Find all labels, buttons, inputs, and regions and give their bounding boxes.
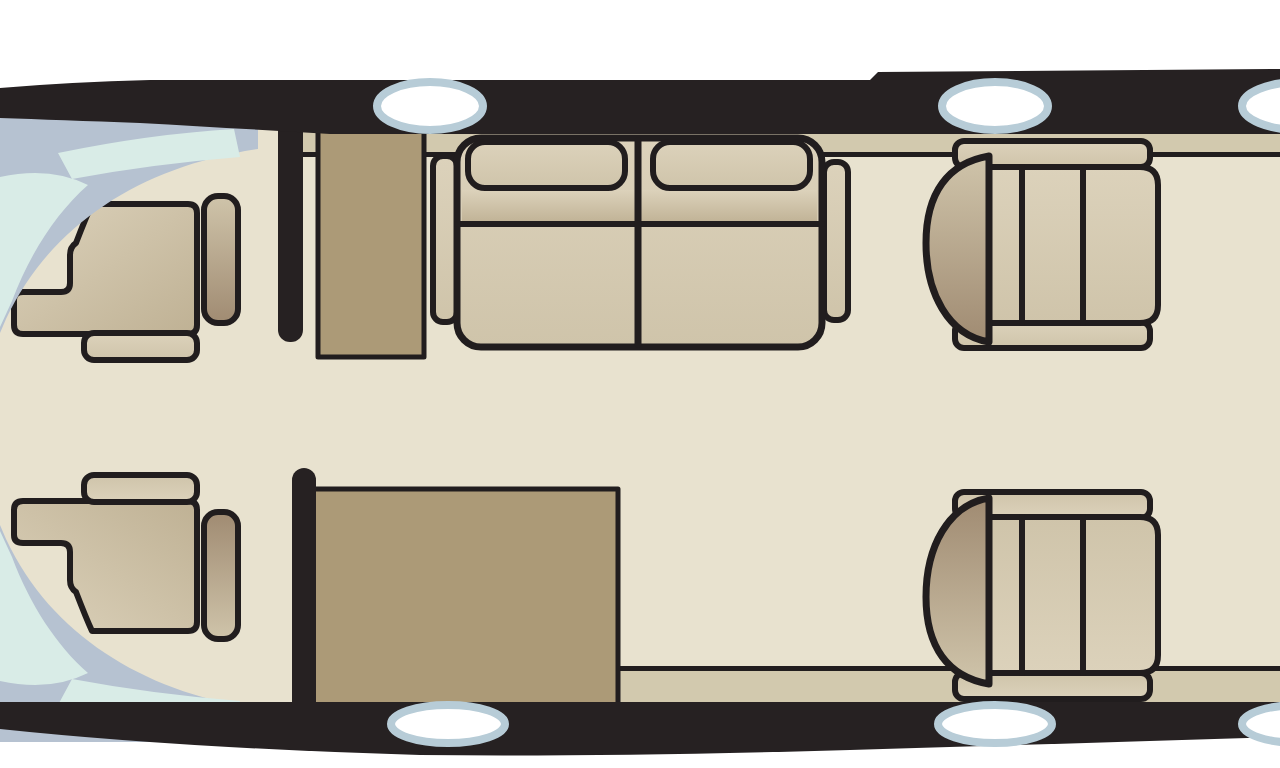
cabin-window-top-1: Cabin window	[377, 82, 483, 130]
club-seat-body	[988, 167, 1158, 323]
bulkhead-bottom: Bulkhead partition	[292, 468, 316, 720]
pilot-seat-armrest	[84, 333, 197, 360]
cabin-window-bottom-2: Cabin window	[938, 705, 1052, 743]
pilot-seat-headrest	[204, 196, 238, 323]
divan: Two-place divan	[433, 138, 848, 347]
galley-cabinet: Galley cabinet	[318, 124, 424, 357]
divan-armrest-left	[433, 156, 457, 322]
club-seat-bottom	[926, 492, 1158, 699]
divan-headrest-right	[653, 142, 810, 188]
cabin-window-bottom-1: Cabin window	[391, 705, 505, 743]
club-seat-top: Club seat	[926, 141, 1158, 348]
floor-plan-svg: Aircraft cabin floor plan Sidewall ledge…	[0, 0, 1280, 768]
divan-headrest-left	[468, 142, 625, 188]
divan-armrest-right	[824, 162, 848, 320]
sidewall-cabinet: Cabinet table	[313, 489, 618, 705]
cabin-window-top-2: Cabin window	[942, 82, 1048, 130]
cabin-floor-plan-diagram: Aircraft cabin floor plan Sidewall ledge…	[0, 0, 1280, 768]
